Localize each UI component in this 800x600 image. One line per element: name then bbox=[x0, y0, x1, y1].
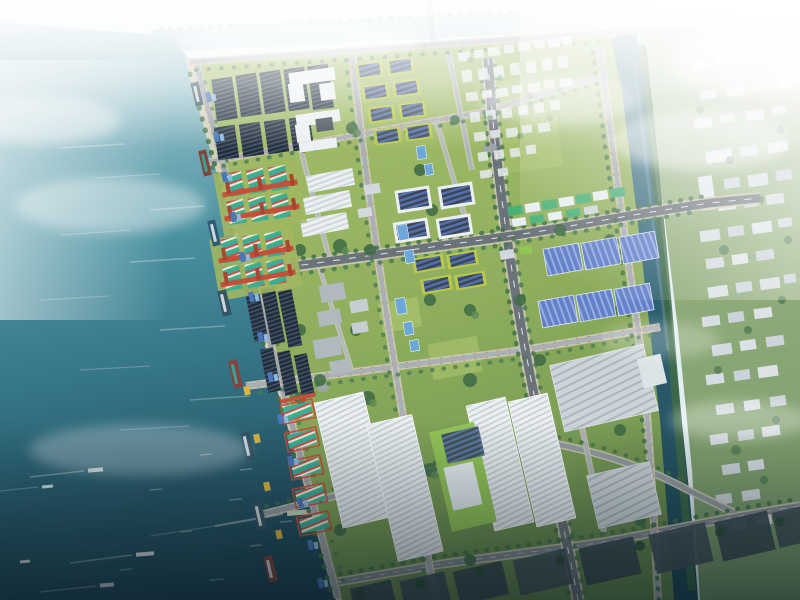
atmosphere bbox=[0, 0, 800, 600]
aerial-rendering-frame bbox=[0, 0, 800, 600]
haze-top-right bbox=[520, 0, 800, 300]
vignette-bottom bbox=[0, 420, 800, 600]
cloud-wisp bbox=[600, 322, 720, 358]
industrial-park-aerial-rendering bbox=[0, 0, 800, 600]
